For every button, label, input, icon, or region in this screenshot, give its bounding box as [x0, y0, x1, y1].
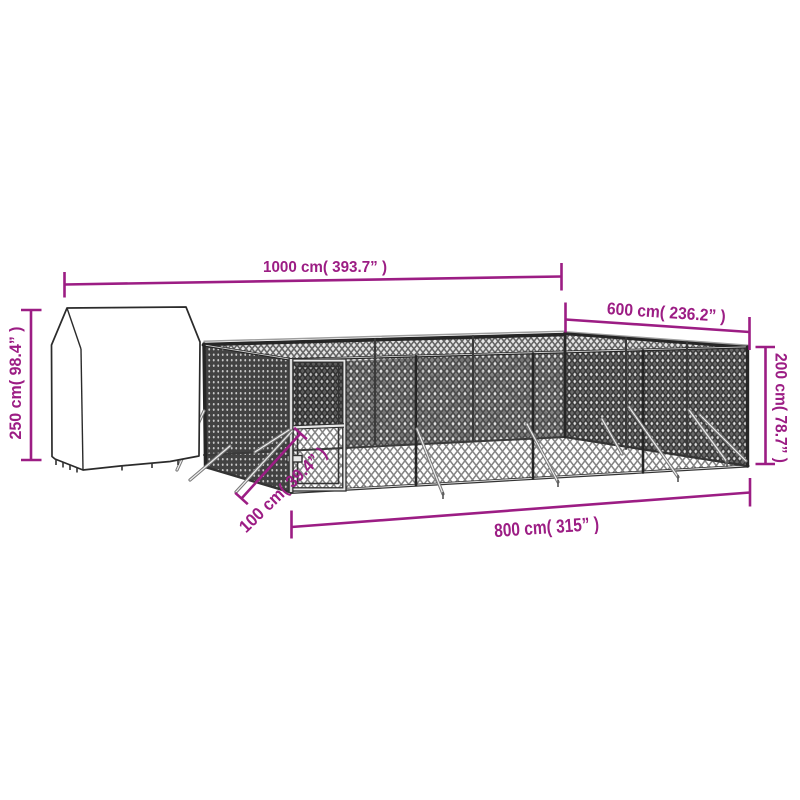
svg-text:200 cm( 78.7” ): 200 cm( 78.7” ) [772, 353, 791, 463]
svg-text:1000 cm( 393.7” ): 1000 cm( 393.7” ) [263, 259, 387, 276]
svg-text:250 cm( 98.4” ): 250 cm( 98.4” ) [6, 327, 25, 440]
